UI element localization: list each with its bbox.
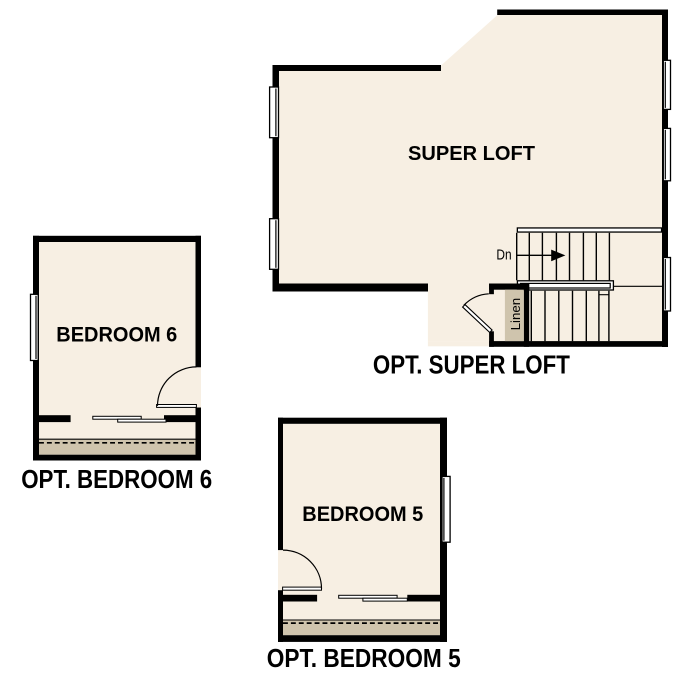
svg-text:OPT. BEDROOM 6: OPT. BEDROOM 6 [21,466,212,494]
svg-text:BEDROOM 5: BEDROOM 5 [302,503,423,526]
svg-text:Linen: Linen [508,298,523,331]
svg-text:SUPER LOFT: SUPER LOFT [408,142,535,165]
svg-text:Dn: Dn [496,248,511,264]
svg-text:OPT. SUPER LOFT: OPT. SUPER LOFT [373,350,570,380]
svg-text:OPT. BEDROOM 5: OPT. BEDROOM 5 [267,645,461,673]
svg-text:BEDROOM 6: BEDROOM 6 [56,322,177,346]
